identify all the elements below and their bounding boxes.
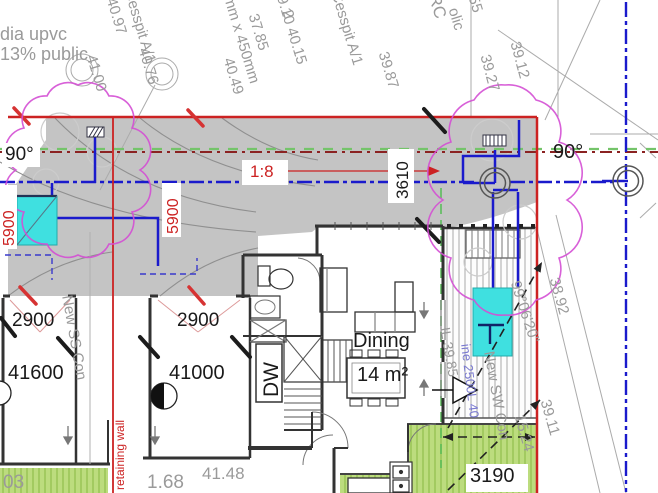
survey-level-4148: 41.48: [202, 465, 245, 482]
appliance-label-dw: DW: [261, 362, 282, 397]
sofa: [320, 268, 415, 332]
dim-41000: 41000: [169, 363, 225, 383]
survey-level-03: 03: [3, 473, 24, 492]
ramp-gradient-label: 1:8: [250, 163, 274, 180]
dim-41600: 41600: [8, 363, 64, 383]
lawn-areas: [0, 424, 537, 493]
water-tank-right: [473, 288, 512, 356]
dim-5900-left: 5900: [2, 210, 18, 246]
grate-right: [483, 135, 506, 146]
site-plan-canvas: dia upvc 13% public 40.97 Cesspit A/1 41…: [0, 0, 658, 493]
room-label-dining: Dining: [353, 331, 410, 351]
toilet: [258, 266, 270, 286]
shower: [250, 320, 286, 342]
boundary-angle-left: 90°: [5, 145, 34, 164]
boundary-angle-right: 90°: [553, 142, 583, 162]
note-retaining-wall: retaining wall: [114, 420, 126, 490]
dim-2900-mid-garage: 2900: [177, 311, 219, 330]
staircase: [256, 336, 352, 465]
survey-level-168: 1.68: [147, 473, 184, 492]
kitchen-sink: [390, 462, 412, 493]
dining-room: [315, 222, 445, 424]
dim-5900-mid: 5900: [166, 198, 182, 234]
dim-3190: 3190: [470, 466, 515, 486]
dim-2900-left-garage: 2900: [12, 311, 54, 330]
dim-3610: 3610: [394, 161, 411, 199]
room-area-dining: 14 m²: [357, 365, 408, 385]
note-dia-upvc: dia upvc: [0, 25, 67, 43]
note-public: 13% public: [0, 45, 88, 63]
grate-left: [87, 127, 104, 137]
